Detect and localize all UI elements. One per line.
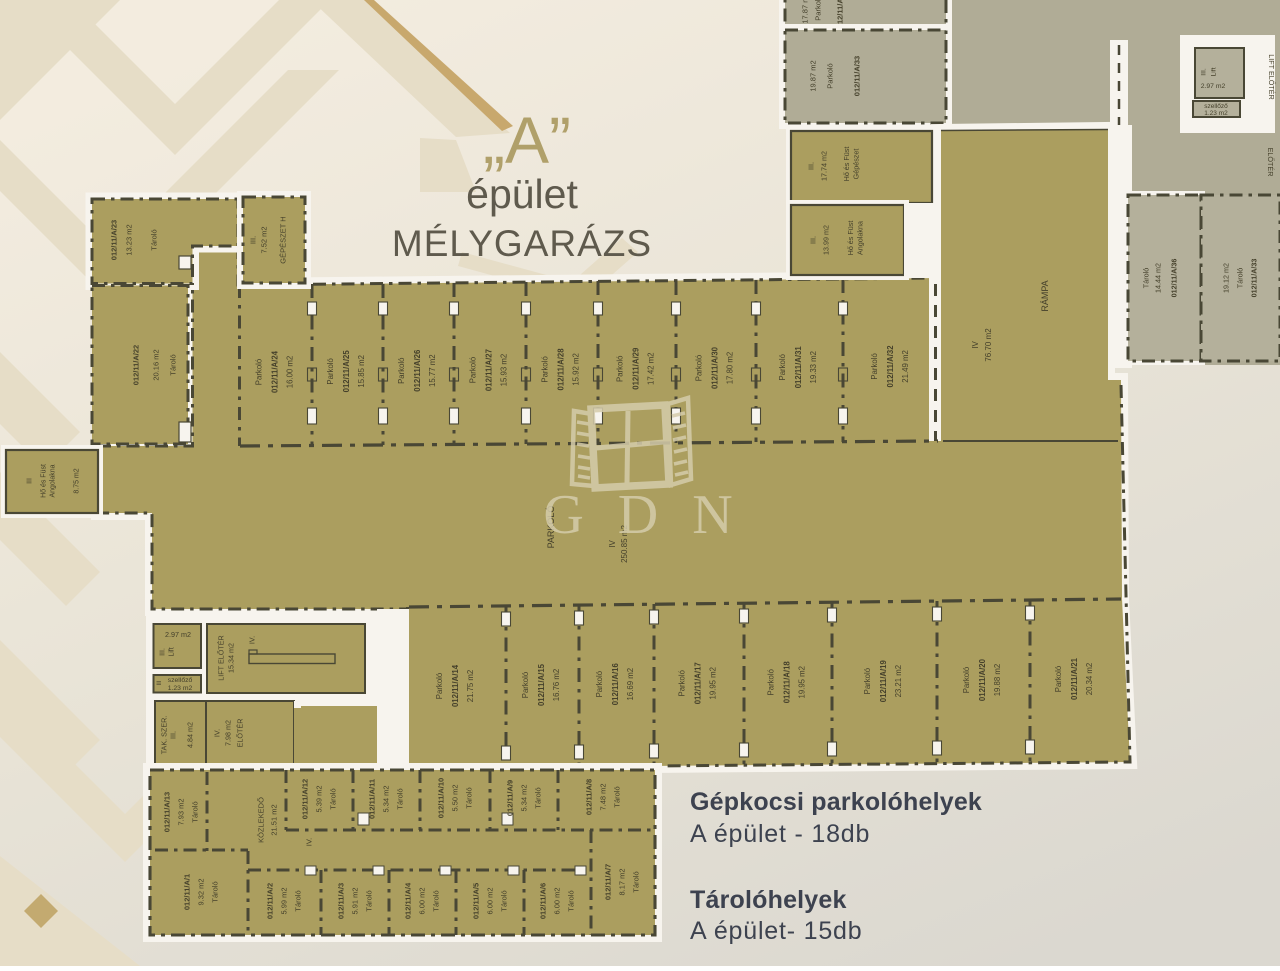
svg-text:16.00 m2: 16.00 m2 xyxy=(286,356,295,389)
svg-text:Tároló: Tároló xyxy=(432,890,441,911)
svg-text:6.00 m2: 6.00 m2 xyxy=(418,887,427,914)
svg-text:012/11/A/11: 012/11/A/11 xyxy=(368,779,377,819)
svg-text:Tároló: Tároló xyxy=(211,881,220,902)
svg-text:Parkoló: Parkoló xyxy=(595,670,604,697)
svg-text:III.: III. xyxy=(249,236,258,244)
svg-text:A épület- 15db: A épület- 15db xyxy=(690,917,862,945)
svg-text:Parkoló: Parkoló xyxy=(678,669,687,696)
svg-text:8.75 m2: 8.75 m2 xyxy=(73,468,80,493)
svg-text:Lift: Lift xyxy=(168,647,175,656)
svg-text:Gépkocsi parkolóhelyek: Gépkocsi parkolóhelyek xyxy=(690,788,982,816)
svg-text:17.80 m2: 17.80 m2 xyxy=(726,352,735,385)
svg-text:19.87 m2: 19.87 m2 xyxy=(809,60,818,91)
svg-text:Parkoló: Parkoló xyxy=(814,0,823,21)
svg-text:19.95 m2: 19.95 m2 xyxy=(798,666,807,699)
svg-text:19.12 m2: 19.12 m2 xyxy=(1222,263,1231,293)
svg-text:Parkoló: Parkoló xyxy=(435,672,444,699)
svg-text:Parkoló: Parkoló xyxy=(870,353,879,380)
svg-text:012/11/A/13: 012/11/A/13 xyxy=(163,792,172,832)
svg-text:Tároló: Tároló xyxy=(150,229,159,250)
svg-text:TAK. SZER.: TAK. SZER. xyxy=(160,716,169,755)
svg-text:012/11/A/8: 012/11/A/8 xyxy=(585,779,594,815)
svg-text:012/11/A/29: 012/11/A/29 xyxy=(632,347,641,390)
svg-text:7.52 m2: 7.52 m2 xyxy=(260,226,269,253)
svg-text:16.76 m2: 16.76 m2 xyxy=(552,669,561,702)
svg-text:III: III xyxy=(157,680,163,685)
svg-text:012/11/A/20: 012/11/A/20 xyxy=(978,658,987,701)
svg-text:19.88 m2: 19.88 m2 xyxy=(993,664,1002,697)
svg-text:7.98 m2: 7.98 m2 xyxy=(224,720,233,746)
svg-text:LIFT ELŐTÉR: LIFT ELŐTÉR xyxy=(1267,54,1276,99)
svg-text:012/11/A/23: 012/11/A/23 xyxy=(110,220,119,260)
svg-text:1.23 m2: 1.23 m2 xyxy=(1204,110,1228,117)
svg-text:A épület - 18db: A épület - 18db xyxy=(690,820,870,848)
svg-text:„A”: „A” xyxy=(483,103,571,177)
svg-text:Lift: Lift xyxy=(1210,67,1217,76)
svg-text:5.34 m2: 5.34 m2 xyxy=(382,785,391,812)
svg-text:012/11/A/32: 012/11/A/32 xyxy=(886,345,895,388)
svg-text:012/11/A/31: 012/11/A/31 xyxy=(794,346,803,389)
svg-text:épület: épület xyxy=(466,171,578,217)
svg-text:5.34 m2: 5.34 m2 xyxy=(520,784,529,811)
svg-text:Parkoló: Parkoló xyxy=(397,357,406,384)
svg-text:Tároló: Tároló xyxy=(294,890,303,911)
svg-text:1.23 m2: 1.23 m2 xyxy=(168,685,193,692)
svg-text:012/11/A/24: 012/11/A/24 xyxy=(271,350,280,393)
svg-text:III: III xyxy=(26,478,33,484)
svg-text:012/11/A/6: 012/11/A/6 xyxy=(539,883,548,919)
svg-text:012/11/A/3: 012/11/A/3 xyxy=(337,883,346,919)
svg-text:012/11/A/33: 012/11/A/33 xyxy=(853,56,862,96)
svg-text:Tároló: Tároló xyxy=(567,890,576,911)
svg-text:012/11/A/21: 012/11/A/21 xyxy=(1070,657,1079,700)
svg-text:III.: III. xyxy=(1200,68,1207,76)
svg-text:9.32 m2: 9.32 m2 xyxy=(197,878,206,905)
svg-text:012/11/A/12: 012/11/A/12 xyxy=(301,779,310,819)
svg-text:012/11/A/33: 012/11/A/33 xyxy=(1250,259,1259,298)
svg-text:2.97 m2: 2.97 m2 xyxy=(1201,83,1226,90)
svg-text:Tároló: Tároló xyxy=(169,354,178,375)
svg-text:012/11/A/17: 012/11/A/17 xyxy=(694,662,703,704)
svg-text:012/11/A/22: 012/11/A/22 xyxy=(132,345,141,385)
svg-text:19.95 m2: 19.95 m2 xyxy=(709,667,718,700)
svg-text:Parkoló: Parkoló xyxy=(778,353,787,380)
svg-text:Parkoló: Parkoló xyxy=(326,357,335,384)
svg-text:8.17 m2: 8.17 m2 xyxy=(618,868,627,895)
svg-text:Tároló: Tároló xyxy=(1142,268,1151,288)
svg-text:15.85 m2: 15.85 m2 xyxy=(357,355,366,388)
svg-text:012/11/A/4: 012/11/A/4 xyxy=(404,882,413,919)
svg-text:Angolakna: Angolakna xyxy=(49,464,56,497)
svg-text:III.: III. xyxy=(807,162,816,170)
svg-text:012/11/A/30: 012/11/A/30 xyxy=(711,346,720,389)
svg-text:Angolakna: Angolakna xyxy=(856,221,865,255)
svg-text:012/11/A/9: 012/11/A/9 xyxy=(506,780,515,816)
svg-text:21.51 m2: 21.51 m2 xyxy=(270,804,279,835)
svg-text:Parkoló: Parkoló xyxy=(863,667,872,694)
svg-text:IV.: IV. xyxy=(305,838,314,846)
svg-text:Tároló: Tároló xyxy=(632,871,641,892)
svg-text:012/11/A/10: 012/11/A/10 xyxy=(437,778,446,818)
svg-text:Gépészet: Gépészet xyxy=(852,149,861,180)
svg-text:13.99 m2: 13.99 m2 xyxy=(822,225,831,255)
svg-text:Tároló: Tároló xyxy=(534,787,543,808)
svg-text:7.48 m2: 7.48 m2 xyxy=(599,783,608,810)
svg-text:012/11/A/1: 012/11/A/1 xyxy=(183,874,192,910)
svg-text:III.: III. xyxy=(159,648,166,656)
svg-text:Parkoló: Parkoló xyxy=(255,358,264,385)
svg-text:14.44 m2: 14.44 m2 xyxy=(1154,263,1163,293)
svg-text:III.: III. xyxy=(809,236,818,244)
svg-text:Hő és Füst: Hő és Füst xyxy=(846,221,855,256)
svg-text:5.91 m2: 5.91 m2 xyxy=(351,887,360,914)
svg-text:GÉPÉSZET H: GÉPÉSZET H xyxy=(279,216,288,263)
svg-text:012/11/A/34: 012/11/A/34 xyxy=(836,0,845,28)
svg-text:IV.: IV. xyxy=(248,636,257,644)
svg-text:Parkoló: Parkoló xyxy=(541,356,550,383)
svg-text:LIFT ELŐTÉR: LIFT ELŐTÉR xyxy=(217,635,226,680)
svg-text:15.92 m2: 15.92 m2 xyxy=(572,353,581,386)
svg-text:19.33 m2: 19.33 m2 xyxy=(809,351,818,384)
svg-text:Parkoló: Parkoló xyxy=(962,666,971,693)
svg-text:Hő és Füst: Hő és Füst xyxy=(842,147,851,182)
svg-text:2.97 m2: 2.97 m2 xyxy=(165,630,191,639)
svg-text:Parkoló: Parkoló xyxy=(1054,665,1063,692)
svg-text:012/11/A/16: 012/11/A/16 xyxy=(611,663,620,706)
svg-text:012/11/A/7: 012/11/A/7 xyxy=(604,864,613,900)
svg-text:Parkoló: Parkoló xyxy=(767,668,776,695)
svg-text:5.99 m2: 5.99 m2 xyxy=(280,887,289,914)
svg-text:5.50 m2: 5.50 m2 xyxy=(451,784,460,811)
svg-text:17.87 m2: 17.87 m2 xyxy=(801,0,810,24)
svg-text:6.00 m2: 6.00 m2 xyxy=(553,887,562,914)
svg-text:20.16 m2: 20.16 m2 xyxy=(152,349,161,380)
svg-text:21.49 m2: 21.49 m2 xyxy=(901,350,910,383)
svg-text:Hő és Füst: Hő és Füst xyxy=(40,464,47,498)
svg-text:012/11/A/15: 012/11/A/15 xyxy=(537,663,546,706)
svg-text:ELŐTÉR: ELŐTÉR xyxy=(1266,148,1275,177)
svg-text:Parkoló: Parkoló xyxy=(469,356,478,383)
svg-text:RÁMPA: RÁMPA xyxy=(1040,280,1050,311)
svg-text:16.69 m2: 16.69 m2 xyxy=(626,668,635,701)
svg-text:Tároló: Tároló xyxy=(465,787,474,808)
svg-text:012/11/A/2: 012/11/A/2 xyxy=(266,883,275,919)
svg-text:21.75 m2: 21.75 m2 xyxy=(466,670,475,703)
svg-text:17.74 m2: 17.74 m2 xyxy=(820,151,829,181)
svg-text:Tároló: Tároló xyxy=(329,788,338,809)
svg-text:012/11/A/36: 012/11/A/36 xyxy=(1170,259,1179,298)
svg-text:012/11/A/14: 012/11/A/14 xyxy=(451,664,460,707)
svg-text:15.93 m2: 15.93 m2 xyxy=(500,354,509,387)
svg-text:012/11/A/18: 012/11/A/18 xyxy=(783,661,792,704)
svg-text:012/11/A/25: 012/11/A/25 xyxy=(342,350,351,393)
svg-text:012/11/A/27: 012/11/A/27 xyxy=(485,349,494,391)
svg-text:ELŐTÉR: ELŐTÉR xyxy=(236,719,245,748)
svg-text:17.42 m2: 17.42 m2 xyxy=(647,352,656,385)
svg-text:III.: III. xyxy=(169,731,178,739)
svg-text:IV.: IV. xyxy=(213,729,222,737)
svg-text:Parkoló: Parkoló xyxy=(826,63,835,88)
svg-text:szellőző: szellőző xyxy=(168,677,193,684)
svg-text:Tároló: Tároló xyxy=(500,890,509,911)
svg-text:7.93 m2: 7.93 m2 xyxy=(177,798,186,825)
svg-text:012/11/A/5: 012/11/A/5 xyxy=(472,883,481,919)
svg-text:15.77 m2: 15.77 m2 xyxy=(428,354,437,387)
svg-text:012/11/A/28: 012/11/A/28 xyxy=(557,348,566,391)
svg-text:76.70 m2: 76.70 m2 xyxy=(984,328,993,362)
svg-text:4.84 m2: 4.84 m2 xyxy=(186,722,195,748)
svg-text:Parkoló: Parkoló xyxy=(616,355,625,382)
svg-text:Parkoló: Parkoló xyxy=(695,354,704,381)
svg-text:Tároló: Tároló xyxy=(396,788,405,809)
svg-text:20.34 m2: 20.34 m2 xyxy=(1085,663,1094,696)
svg-text:012/11/A/19: 012/11/A/19 xyxy=(879,659,888,702)
svg-text:6.00 m2: 6.00 m2 xyxy=(486,887,495,914)
svg-text:IV: IV xyxy=(971,341,980,349)
svg-text:szellőző: szellőző xyxy=(1204,103,1228,110)
svg-text:13.23 m2: 13.23 m2 xyxy=(125,224,134,255)
svg-text:5.39 m2: 5.39 m2 xyxy=(315,785,324,812)
svg-text:GDN: GDN xyxy=(543,484,766,546)
svg-text:Tárolóhelyek: Tárolóhelyek xyxy=(690,886,847,914)
svg-text:MÉLYGARÁZS: MÉLYGARÁZS xyxy=(392,223,652,264)
svg-text:Tároló: Tároló xyxy=(191,801,200,822)
svg-text:Tároló: Tároló xyxy=(613,786,622,807)
svg-text:Tároló: Tároló xyxy=(1236,268,1245,288)
svg-text:Parkoló: Parkoló xyxy=(521,671,530,698)
svg-text:Tároló: Tároló xyxy=(365,890,374,911)
svg-text:15.34 m2: 15.34 m2 xyxy=(227,643,236,673)
svg-text:23.21 m2: 23.21 m2 xyxy=(894,665,903,698)
svg-text:012/11/A/26: 012/11/A/26 xyxy=(413,349,422,392)
svg-text:KÖZLEKEDŐ: KÖZLEKEDŐ xyxy=(257,797,266,843)
